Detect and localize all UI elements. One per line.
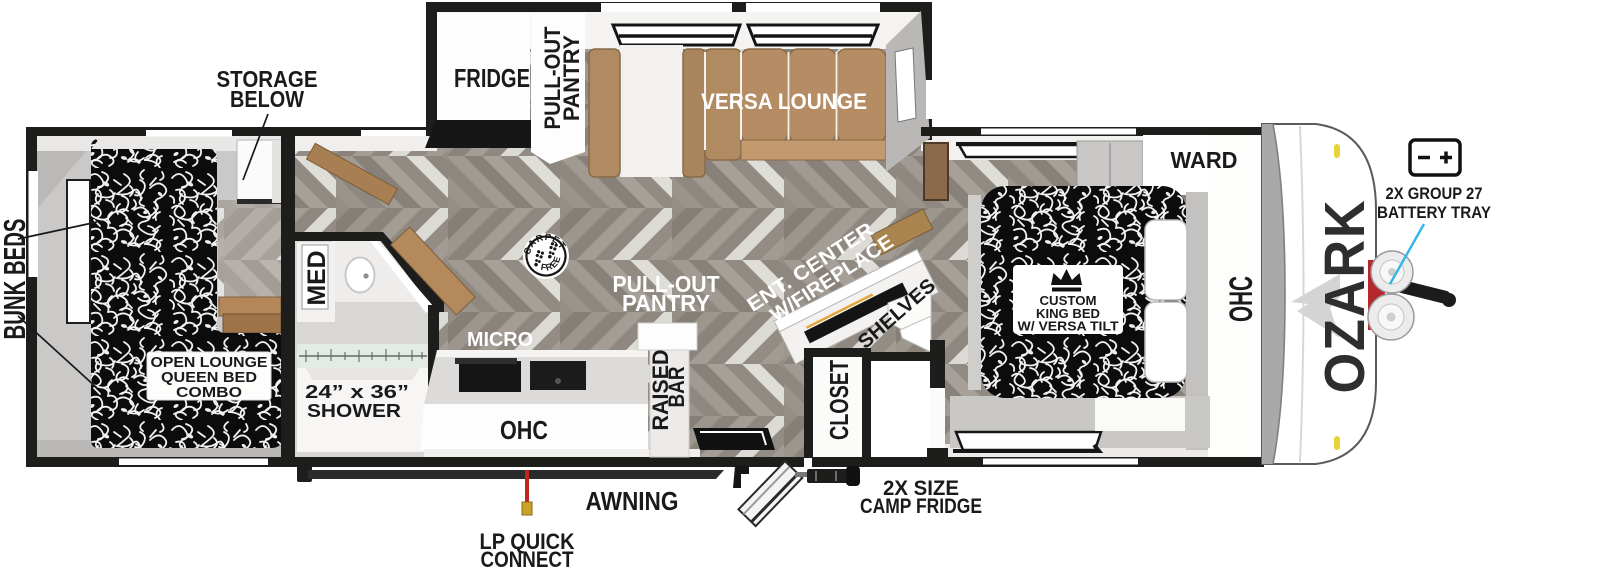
svg-text:FRIDGE: FRIDGE bbox=[454, 63, 530, 93]
svg-text:W/ VERSA TILT: W/ VERSA TILT bbox=[1018, 319, 1119, 334]
svg-text:QUEEN BED: QUEEN BED bbox=[161, 370, 257, 386]
svg-text:PANTRY: PANTRY bbox=[622, 290, 710, 316]
svg-text:CLOSET: CLOSET bbox=[824, 360, 854, 440]
svg-text:OHC: OHC bbox=[500, 415, 548, 445]
svg-text:CAMP FRIDGE: CAMP FRIDGE bbox=[860, 495, 982, 518]
svg-text:BATTERY TRAY: BATTERY TRAY bbox=[1377, 203, 1492, 222]
svg-text:SHOWER: SHOWER bbox=[307, 401, 401, 421]
svg-text:BELOW: BELOW bbox=[230, 86, 304, 112]
svg-text:PANTRY: PANTRY bbox=[559, 35, 584, 121]
svg-text:CONNECT: CONNECT bbox=[481, 547, 574, 567]
svg-text:2X GROUP 27: 2X GROUP 27 bbox=[1386, 184, 1483, 203]
svg-text:OPEN LOUNGE: OPEN LOUNGE bbox=[151, 355, 268, 371]
svg-text:AWNING: AWNING bbox=[586, 486, 679, 516]
svg-text:OZARK: OZARK bbox=[1313, 199, 1377, 394]
svg-text:24” x 36”: 24” x 36” bbox=[305, 382, 409, 402]
svg-text:MED: MED bbox=[303, 251, 331, 306]
svg-text:WARD: WARD bbox=[1171, 147, 1238, 173]
svg-text:MICRO: MICRO bbox=[467, 329, 533, 351]
svg-text:COMBO: COMBO bbox=[176, 385, 242, 401]
svg-text:BAR: BAR bbox=[664, 366, 689, 407]
svg-text:VERSA LOUNGE: VERSA LOUNGE bbox=[701, 89, 867, 114]
svg-text:OHC: OHC bbox=[1223, 276, 1259, 322]
